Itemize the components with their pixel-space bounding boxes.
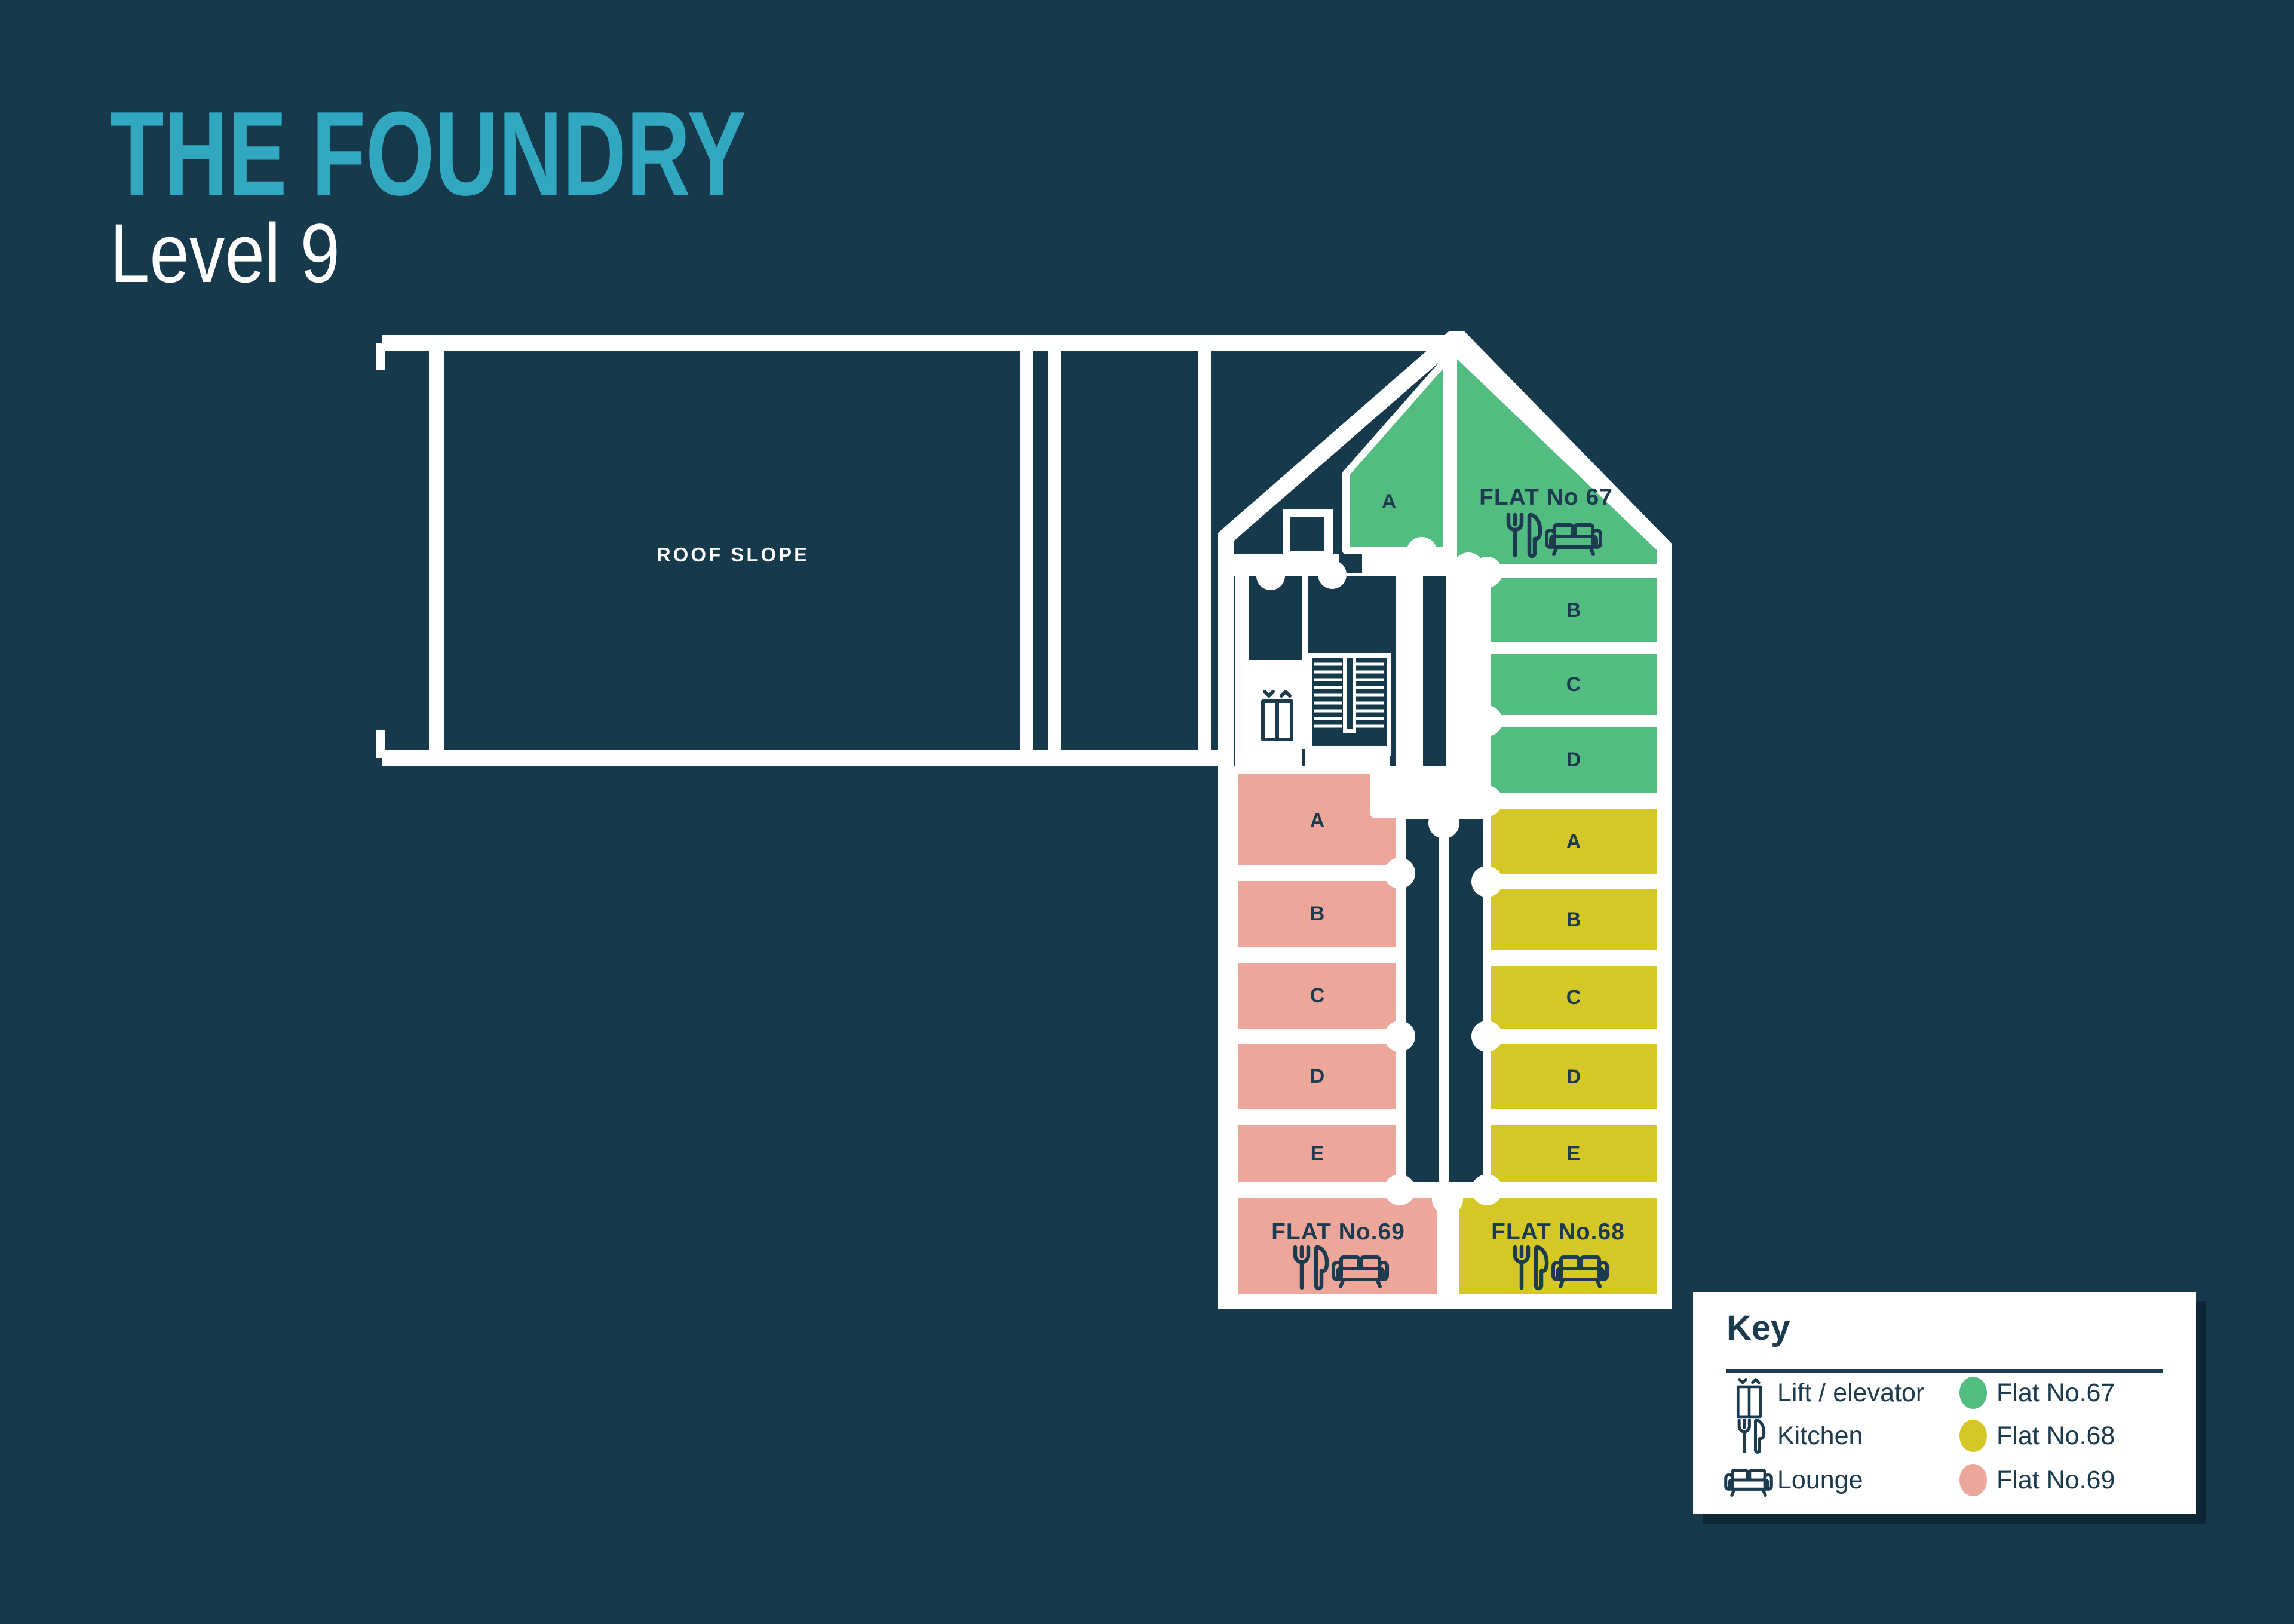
key-flat-label: Flat No.68 [1996, 1422, 2115, 1450]
room-letter: E [1567, 1142, 1581, 1165]
room-letter: E [1311, 1142, 1324, 1165]
key-flat-label: Flat No.69 [1996, 1466, 2115, 1494]
key-item-label: Lounge [1777, 1466, 1863, 1494]
room-letter: C [1566, 986, 1581, 1009]
key-item-label: Lift / elevator [1777, 1379, 1924, 1407]
corridor-inner [1396, 554, 1423, 770]
foundry-level9-floorplan: THE FOUNDRY Level 9 ROOF SLOPE [0, 0, 2294, 1624]
flat69-label: FLAT No.69 [1271, 1219, 1405, 1245]
key-flat-label: Flat No.67 [1996, 1379, 2115, 1407]
page-title: THE FOUNDRY [110, 87, 746, 220]
room-letter: B [1566, 908, 1581, 931]
duct [1290, 517, 1324, 551]
room-letter: C [1310, 984, 1325, 1007]
door-arc [1318, 560, 1347, 589]
wall-stub-bottom [376, 730, 385, 758]
key-panel: Key Lift / elevator Kitchen Lounge Flat … [1693, 1292, 2206, 1524]
room-letter: B [1566, 599, 1581, 622]
flat68-dot [1959, 1420, 1987, 1452]
key-title: Key [1726, 1309, 1790, 1347]
flat69-living [1235, 1195, 1440, 1297]
wall-stub-top [376, 343, 385, 370]
corridor-left-strip [1235, 554, 1249, 663]
room-letter: A [1566, 830, 1581, 853]
room-letter: D [1566, 1066, 1581, 1088]
key-item-label: Kitchen [1777, 1422, 1863, 1450]
room-letter: A [1310, 809, 1325, 832]
door-arc [1256, 561, 1285, 590]
page-subtitle: Level 9 [110, 206, 340, 300]
flat67-label: FLAT No 67 [1479, 484, 1613, 510]
flat69-dot [1959, 1464, 1987, 1496]
roof-slope-label: ROOF SLOPE [657, 544, 809, 566]
room-letter: D [1566, 748, 1581, 771]
room-letter: D [1310, 1065, 1325, 1088]
room-letter: A [1382, 490, 1397, 513]
room-letter: C [1566, 673, 1581, 696]
room-letter: B [1310, 902, 1325, 925]
flat68-label: FLAT No.68 [1491, 1219, 1625, 1245]
corridor-right [1446, 568, 1483, 824]
right-wing: FLAT No 67 A B C D A B C D E FLAT No.68 [1226, 339, 1664, 1301]
flat67-dot [1959, 1377, 1987, 1409]
flat68-living [1455, 1195, 1660, 1297]
